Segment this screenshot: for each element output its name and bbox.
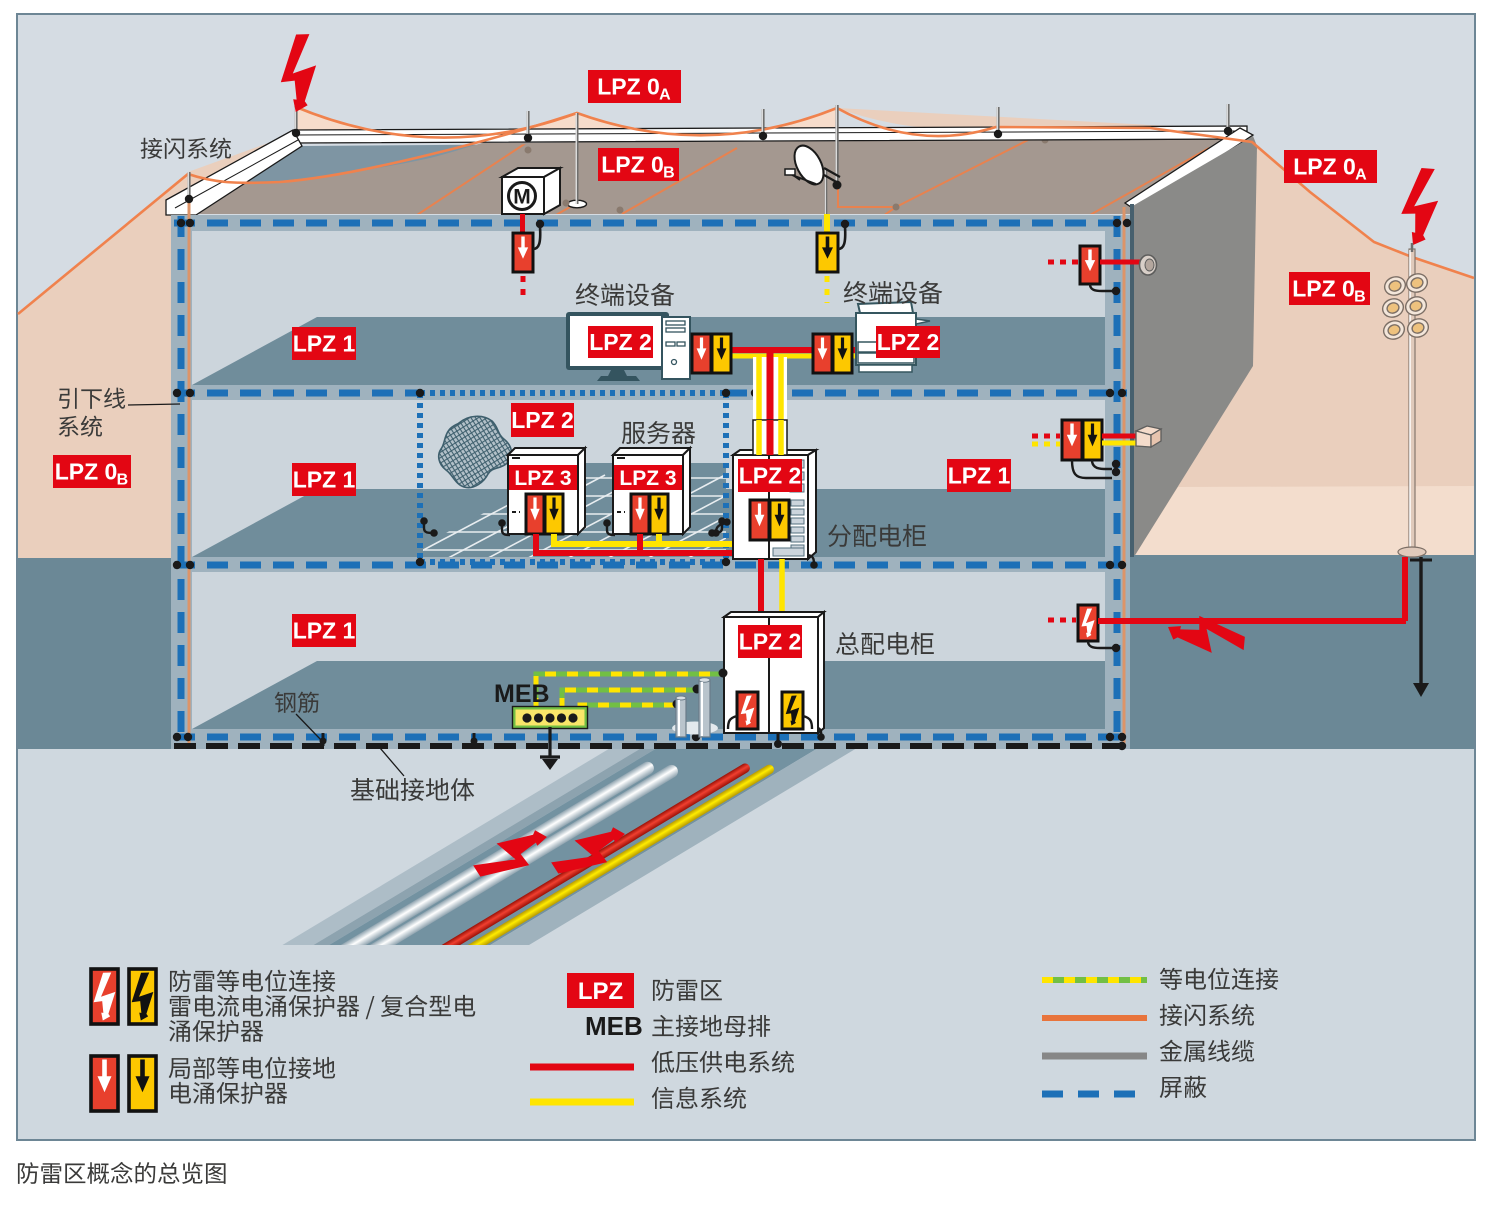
svg-text:A: A (659, 87, 671, 104)
svg-text:M: M (513, 186, 531, 209)
svg-text:LPZ 2: LPZ 2 (739, 629, 802, 655)
svg-text:LPZ 0: LPZ 0 (1293, 154, 1356, 180)
svg-text:LPZ 2: LPZ 2 (511, 407, 574, 433)
svg-text:LPZ 1: LPZ 1 (293, 618, 356, 644)
svg-text:LPZ 2: LPZ 2 (877, 329, 940, 355)
svg-text:LPZ 0: LPZ 0 (55, 459, 118, 485)
svg-text:LPZ 2: LPZ 2 (589, 329, 652, 355)
svg-text:LPZ 2: LPZ 2 (739, 463, 802, 489)
svg-text:LPZ: LPZ (578, 978, 623, 1005)
svg-text:LPZ 1: LPZ 1 (293, 467, 356, 493)
svg-text:LPZ 0: LPZ 0 (1292, 276, 1355, 302)
svg-text:LPZ 0: LPZ 0 (597, 74, 660, 100)
svg-text:LPZ 3: LPZ 3 (514, 467, 571, 490)
svg-text:MEB: MEB (585, 1011, 643, 1041)
svg-text:B: B (663, 165, 675, 182)
svg-text:LPZ 0: LPZ 0 (601, 152, 664, 178)
svg-text:B: B (1354, 289, 1366, 306)
svg-text:MEB: MEB (494, 680, 550, 708)
svg-text:LPZ 1: LPZ 1 (948, 463, 1011, 489)
svg-text:LPZ 3: LPZ 3 (619, 467, 676, 490)
svg-text:LPZ 1: LPZ 1 (293, 331, 356, 357)
svg-text:B: B (117, 472, 129, 489)
svg-text:A: A (1355, 167, 1367, 184)
